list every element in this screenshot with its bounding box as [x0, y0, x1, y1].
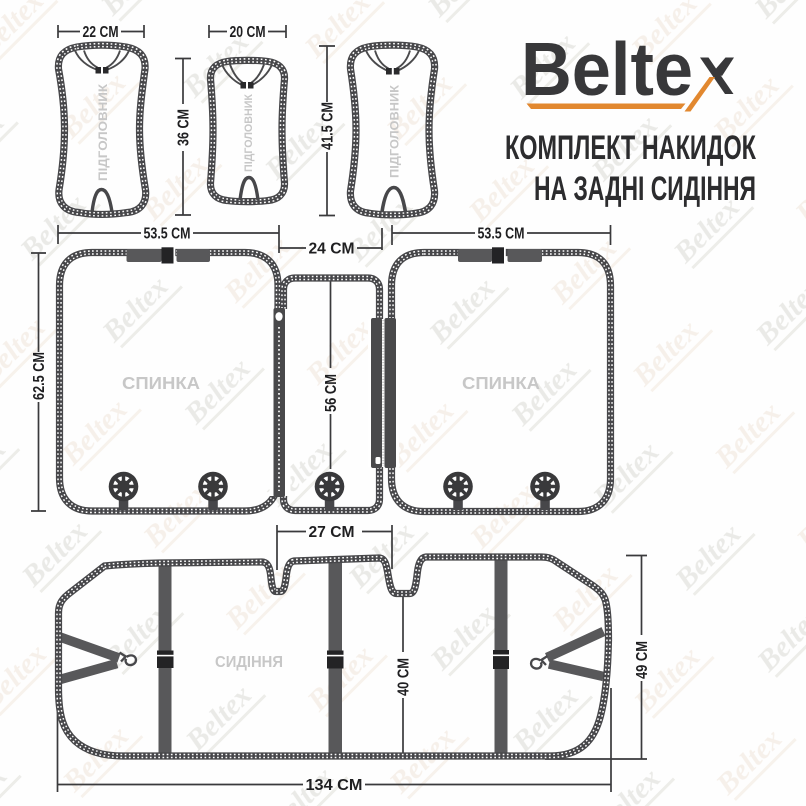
svg-text:49 CM: 49 CM: [634, 641, 651, 679]
svg-text:СПИНКА: СПИНКА: [122, 373, 200, 393]
svg-text:20 CM: 20 CM: [230, 24, 266, 41]
svg-text:24 CM: 24 CM: [309, 241, 355, 258]
svg-text:ПІДГОЛОВНИК: ПІДГОЛОВНИК: [96, 83, 110, 181]
svg-text:СИДІННЯ: СИДІННЯ: [215, 654, 283, 671]
svg-text:36 CM: 36 CM: [176, 109, 193, 146]
svg-text:СПИНКА: СПИНКА: [462, 373, 540, 393]
svg-text:53.5 CM: 53.5 CM: [478, 226, 525, 243]
svg-text:62.5 CM: 62.5 CM: [31, 352, 48, 400]
svg-text:22 CM: 22 CM: [83, 24, 119, 41]
svg-text:40 CM: 40 CM: [396, 658, 413, 696]
svg-text:53.5 CM: 53.5 CM: [144, 226, 191, 243]
svg-text:27 CM: 27 CM: [309, 524, 355, 541]
svg-text:ПІДГОЛОВНИК: ПІДГОЛОВНИК: [243, 94, 255, 172]
svg-text:56 CM: 56 CM: [323, 374, 340, 412]
svg-text:134 CM: 134 CM: [306, 777, 363, 794]
svg-text:41.5 CM: 41.5 CM: [320, 102, 337, 150]
svg-text:Belte: Belte: [521, 27, 693, 111]
svg-text:ПІДГОЛОВНИК: ПІДГОЛОВНИК: [388, 84, 402, 178]
svg-text:КОМПЛЕКТ НАКИДОК: КОМПЛЕКТ НАКИДОК: [505, 129, 757, 167]
svg-text:НА ЗАДНІ СИДІННЯ: НА ЗАДНІ СИДІННЯ: [534, 170, 756, 208]
